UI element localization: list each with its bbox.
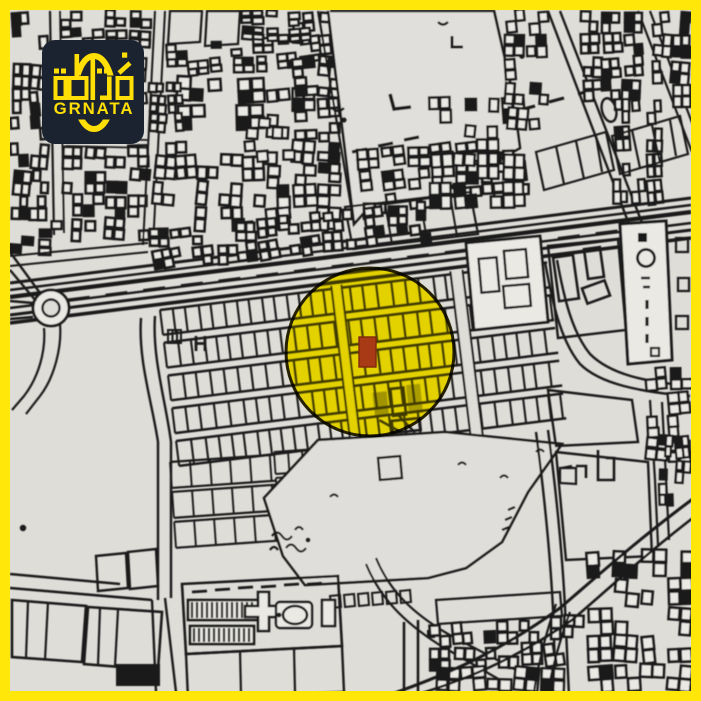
svg-text:GRNATA: GRNATA [54,99,135,118]
